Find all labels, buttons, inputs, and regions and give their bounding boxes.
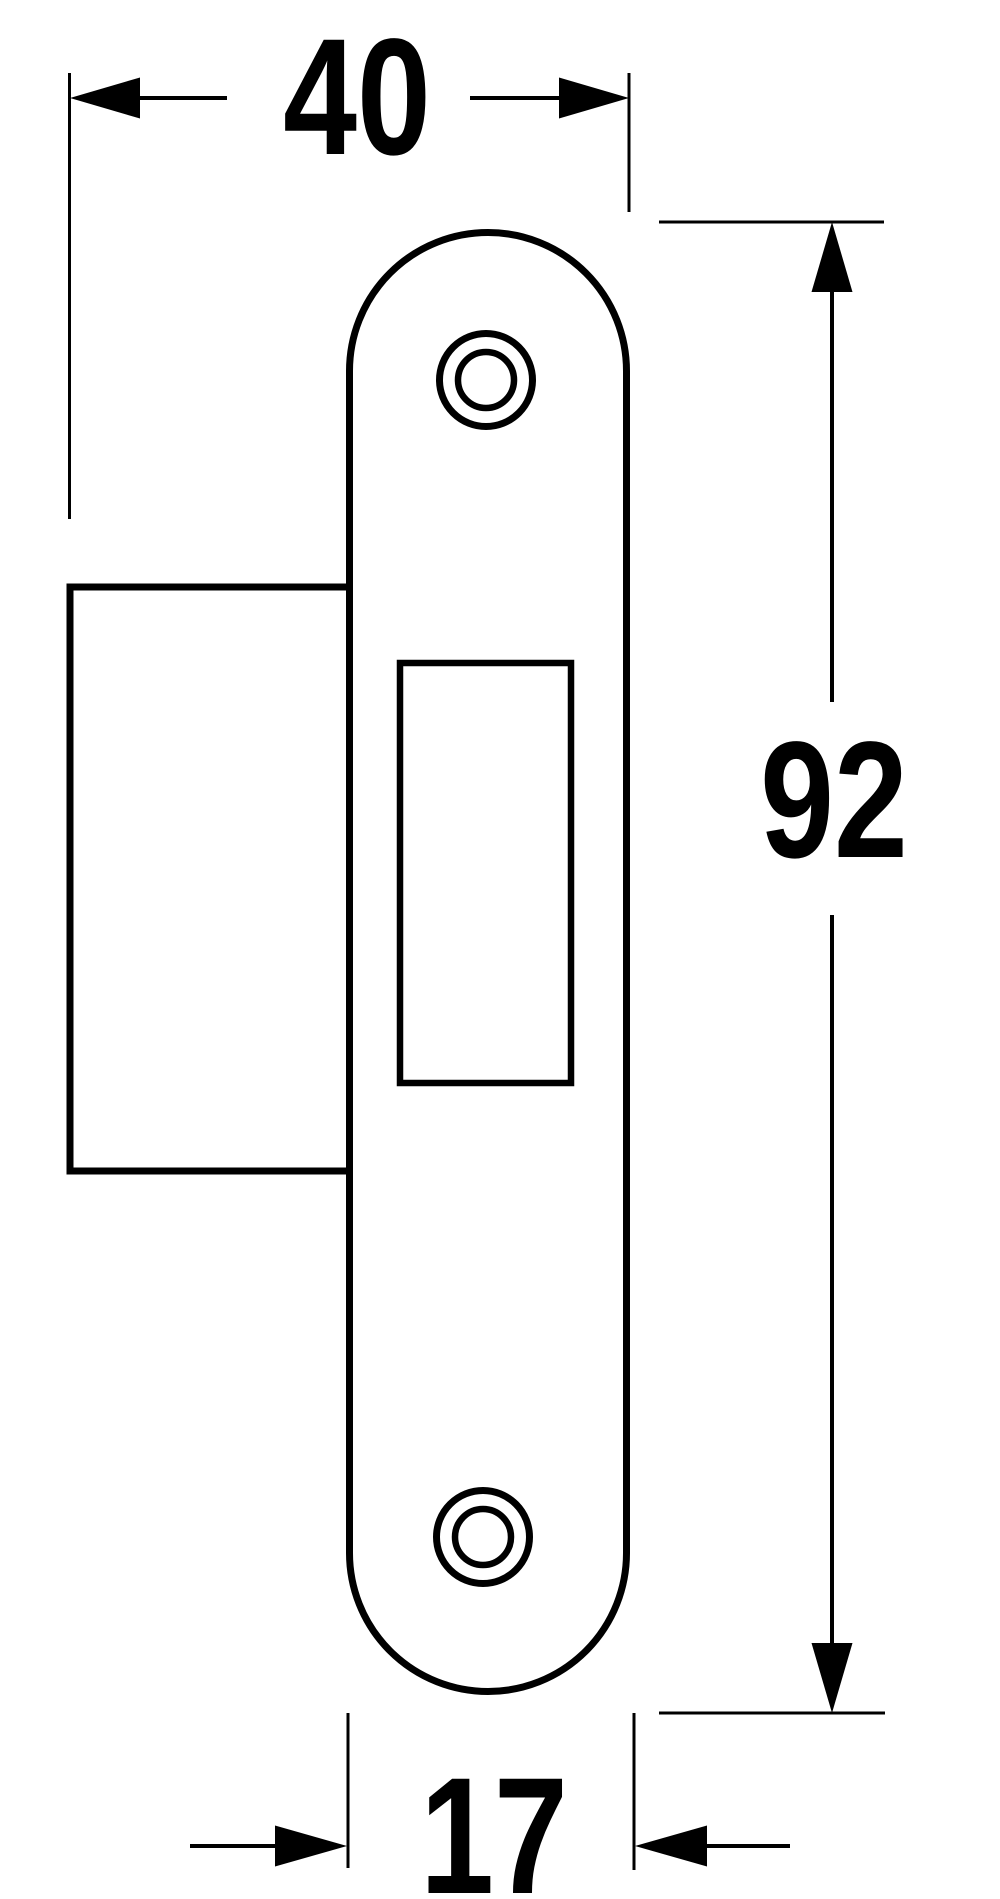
arrowhead-up-icon (812, 222, 853, 292)
dimension-label-right: 92 (760, 707, 908, 893)
arrowhead-left-icon (70, 78, 140, 119)
dimension-label-bottom: 17 (420, 1743, 568, 1899)
part-outlines (70, 233, 627, 1692)
latch-opening (400, 663, 571, 1083)
drawing-canvas: 40 92 17 (0, 0, 1000, 1899)
arrowhead-inward-right-icon (275, 1826, 347, 1867)
arrowhead-down-icon (812, 1643, 853, 1713)
arrowhead-right-icon (559, 78, 629, 119)
lock-case-outline (70, 587, 348, 1171)
dimension-right-92 (659, 222, 885, 1713)
faceplate-outline (350, 233, 627, 1692)
screw-hole-bottom-inner (455, 1509, 511, 1565)
dimension-label-top: 40 (283, 4, 431, 190)
screw-hole-bottom-outer (437, 1491, 530, 1584)
screw-hole-top-inner (458, 352, 514, 408)
screw-hole-top-outer (440, 334, 533, 427)
arrowhead-inward-left-icon (635, 1826, 707, 1867)
strike-plate-technical-diagram: 40 92 17 (0, 0, 1000, 1899)
